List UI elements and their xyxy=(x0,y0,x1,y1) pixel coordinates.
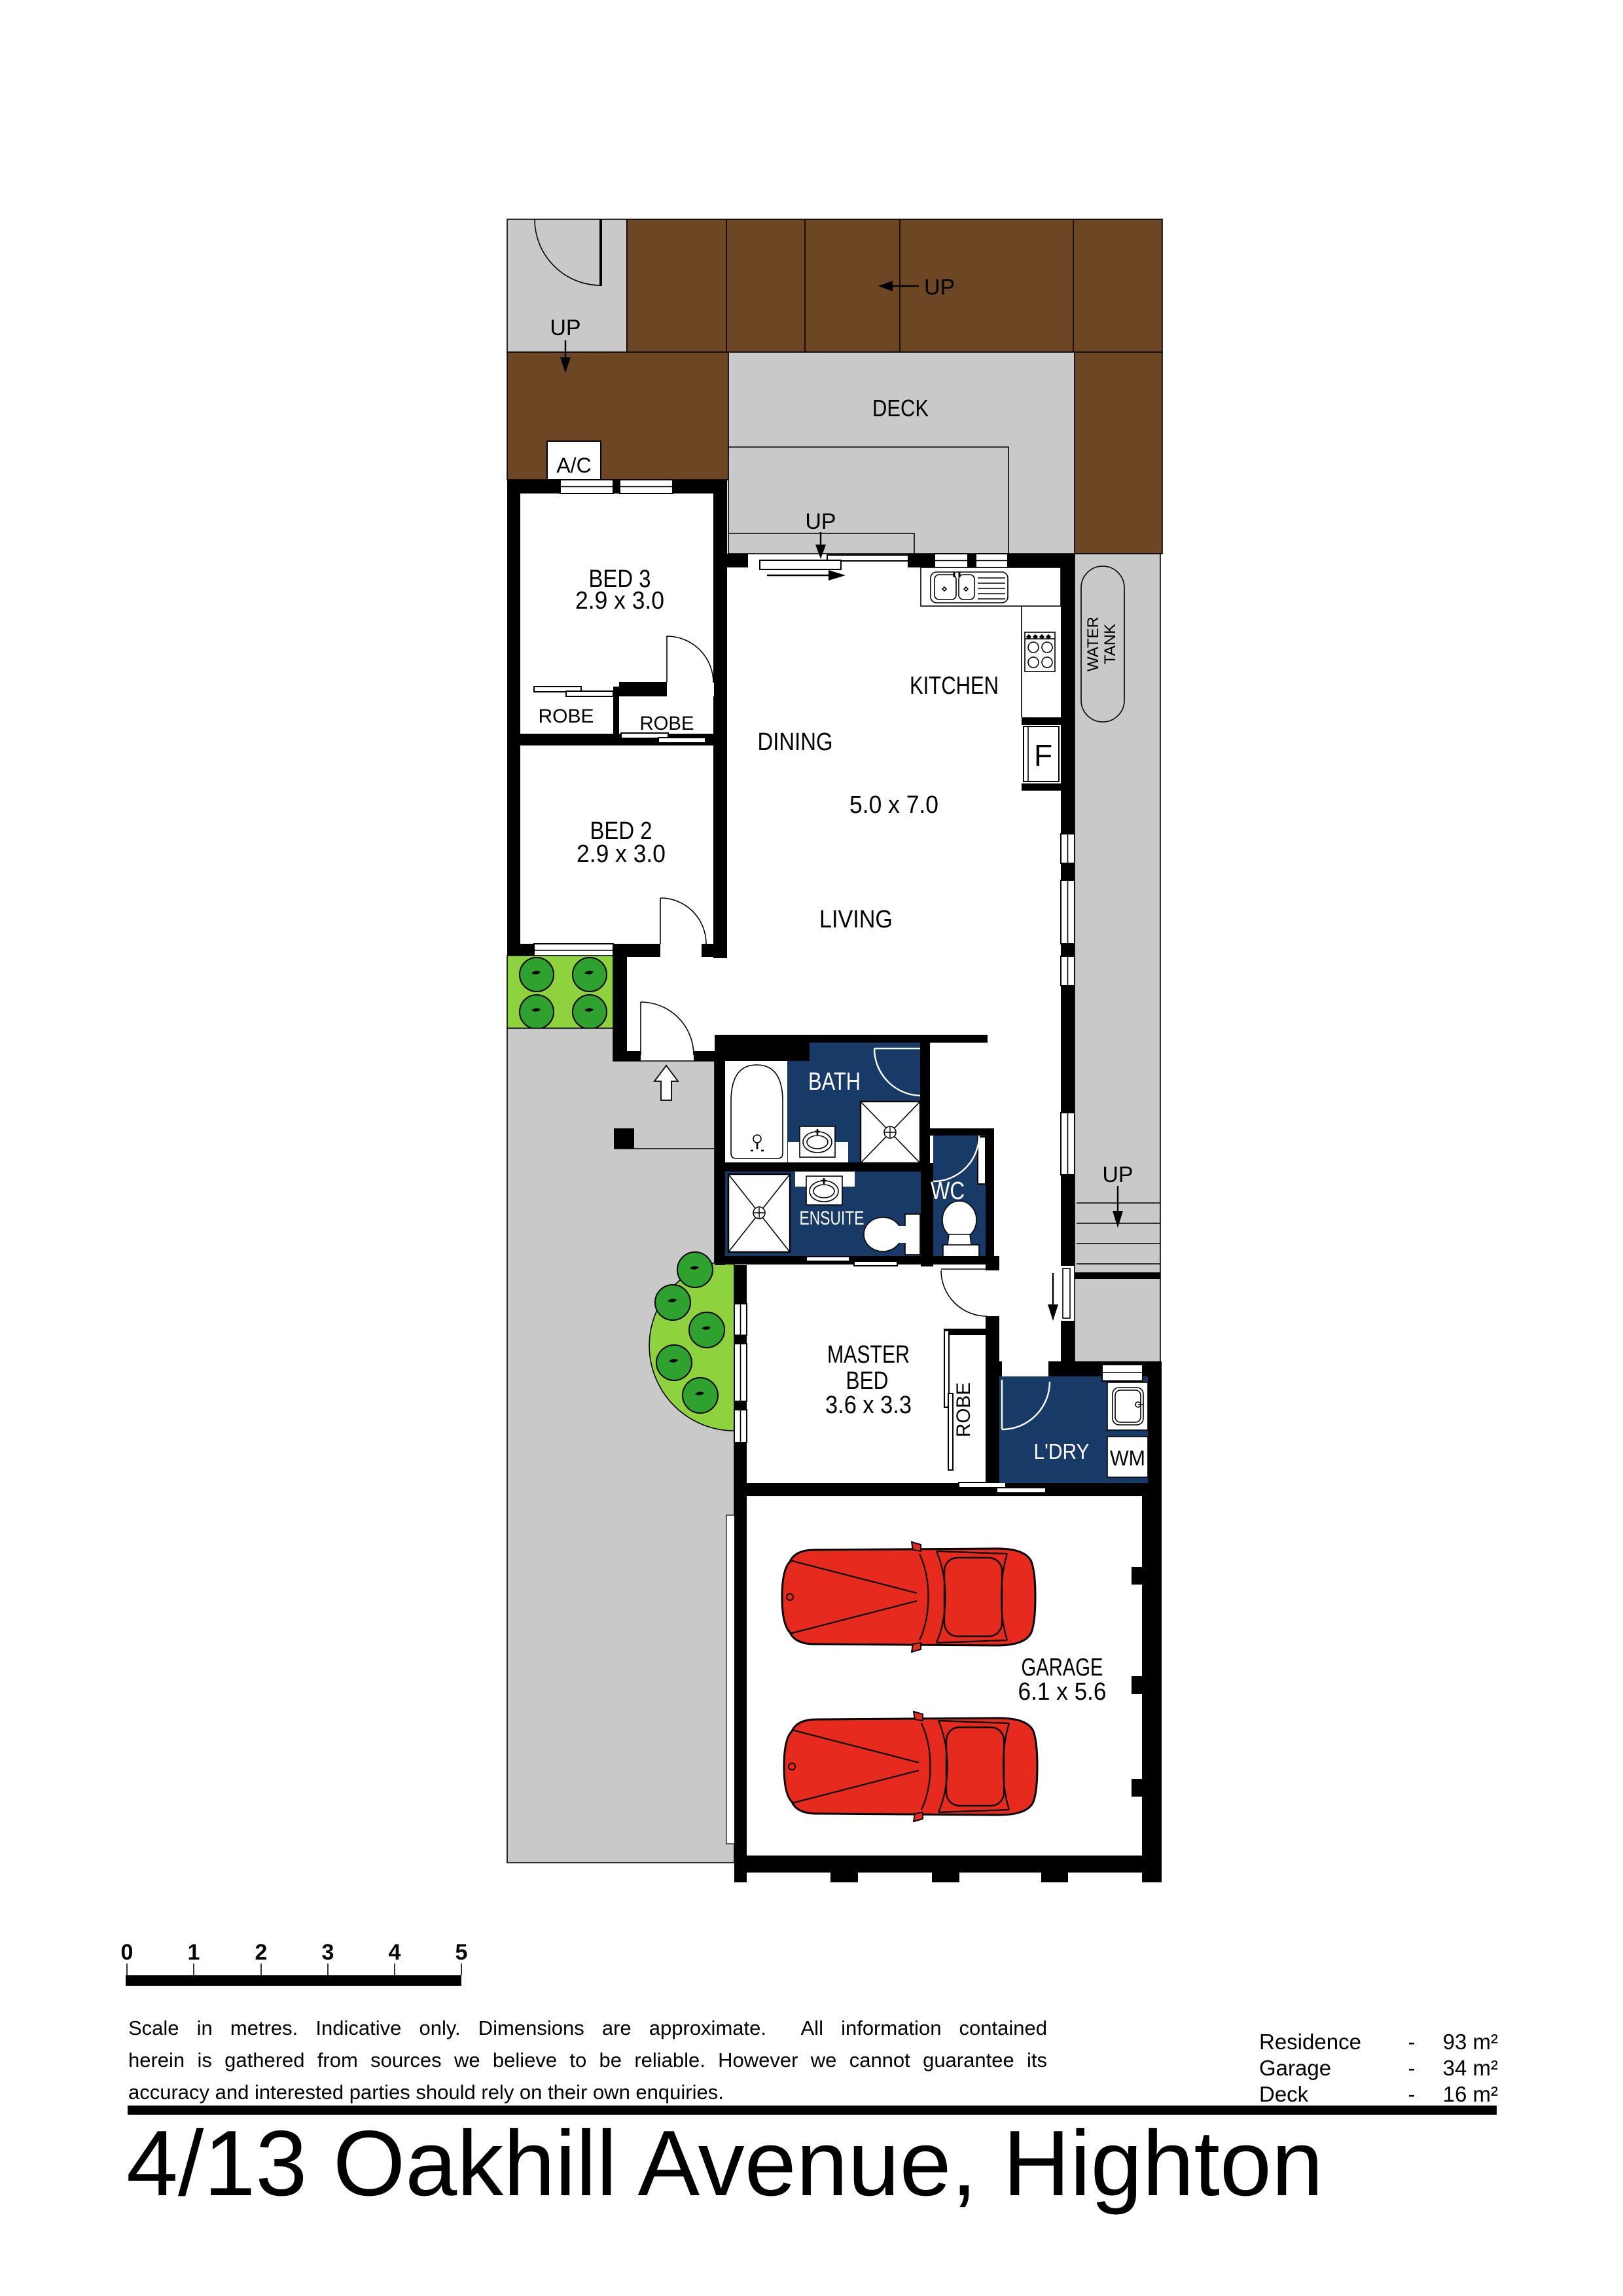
svg-text:ROBE: ROBE xyxy=(539,706,594,727)
svg-text:ROBE: ROBE xyxy=(640,713,694,734)
svg-text:2.9 x 3.0: 2.9 x 3.0 xyxy=(577,840,666,868)
svg-text:KITCHEN: KITCHEN xyxy=(910,672,999,700)
svg-text:6.1 x 5.6: 6.1 x 5.6 xyxy=(1018,1678,1107,1706)
svg-text:BATH: BATH xyxy=(808,1068,861,1096)
svg-text:MASTER: MASTER xyxy=(827,1341,910,1369)
svg-text:4: 4 xyxy=(389,1940,401,1965)
svg-text:LIVING: LIVING xyxy=(819,906,893,933)
svg-text:3.6 x 3.3: 3.6 x 3.3 xyxy=(825,1391,912,1419)
svg-text:1: 1 xyxy=(188,1940,200,1965)
svg-text:Deck: Deck xyxy=(1259,2082,1309,2106)
svg-text:Garage: Garage xyxy=(1259,2056,1331,2080)
svg-text:0: 0 xyxy=(121,1940,134,1965)
svg-text:UP: UP xyxy=(1102,1162,1133,1187)
svg-text:5: 5 xyxy=(455,1940,468,1965)
svg-text:L'DRY: L'DRY xyxy=(1034,1439,1090,1463)
svg-text:Residence: Residence xyxy=(1259,2030,1361,2054)
svg-text:ENSUITE: ENSUITE xyxy=(800,1208,865,1229)
svg-text:GARAGE: GARAGE xyxy=(1022,1654,1103,1681)
svg-text:WM: WM xyxy=(1110,1446,1145,1470)
svg-text:93 m²: 93 m² xyxy=(1443,2030,1498,2054)
svg-text:DINING: DINING xyxy=(758,728,833,756)
svg-text:16 m²: 16 m² xyxy=(1443,2082,1498,2106)
svg-text:WATER: WATER xyxy=(1084,617,1102,672)
svg-text:-: - xyxy=(1408,2056,1416,2080)
svg-text:-: - xyxy=(1408,2030,1416,2054)
svg-text:5.0 x 7.0: 5.0 x 7.0 xyxy=(849,791,938,819)
svg-text:2.9 x 3.0: 2.9 x 3.0 xyxy=(575,587,664,615)
svg-text:2: 2 xyxy=(255,1940,268,1965)
svg-text:WC: WC xyxy=(931,1177,965,1205)
svg-text:A/C: A/C xyxy=(556,454,591,477)
svg-text:-: - xyxy=(1408,2082,1416,2106)
svg-text:3: 3 xyxy=(322,1940,334,1965)
svg-text:UP: UP xyxy=(924,275,955,300)
svg-text:BED: BED xyxy=(846,1367,889,1395)
svg-text:UP: UP xyxy=(550,315,580,340)
svg-text:UP: UP xyxy=(805,509,836,534)
svg-text:ROBE: ROBE xyxy=(953,1382,974,1437)
svg-text:TANK: TANK xyxy=(1101,624,1119,664)
svg-text:DECK: DECK xyxy=(872,395,929,422)
svg-text:F: F xyxy=(1034,738,1052,772)
svg-text:34 m²: 34 m² xyxy=(1443,2056,1498,2080)
